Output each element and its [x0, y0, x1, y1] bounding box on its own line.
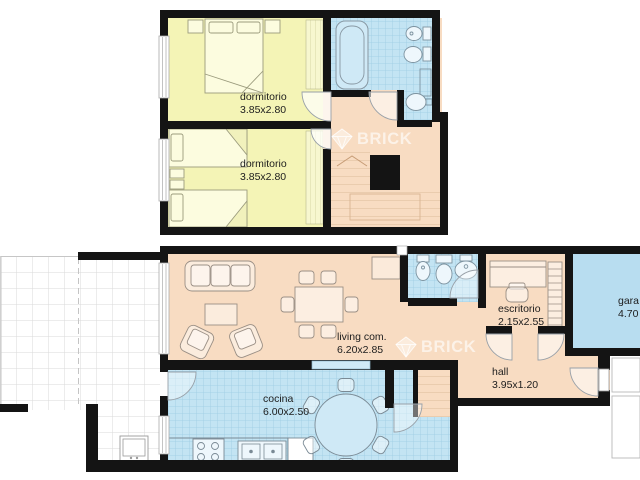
toilet [404, 47, 431, 63]
wardrobe [306, 20, 323, 89]
bathtub [336, 21, 368, 89]
room-dims: 3.85x2.80 [240, 104, 287, 117]
nightstand [170, 169, 184, 178]
entry-path [612, 396, 640, 458]
laundry-tub [120, 436, 148, 461]
desk-chair [506, 283, 528, 302]
pass-through-opening [312, 361, 370, 369]
room-label-dormitorio-1: dormitorio 3.85x2.80 [240, 91, 287, 117]
room-label-garage: gara 4.70 [618, 295, 639, 321]
diamond-gem-icon [331, 128, 353, 150]
door-threshold [160, 372, 168, 396]
sofa [185, 261, 255, 291]
room-name: gara [618, 295, 639, 308]
brick-watermark-lower: BRICK [395, 336, 476, 358]
room-label-dormitorio-2: dormitorio 3.85x2.80 [240, 158, 287, 184]
floor-plan-canvas: dormitorio 3.85x2.80 dormitorio 3.85x2.8… [0, 0, 640, 480]
window [159, 139, 169, 201]
watermark-text: BRICK [357, 130, 412, 149]
diamond-gem-icon [395, 336, 417, 358]
window [159, 36, 169, 98]
toilet [436, 255, 452, 284]
nightstand [265, 20, 280, 33]
room-dims: 3.95x1.20 [492, 379, 538, 392]
cabinet [372, 257, 400, 279]
room-label-living: living com. 6.20x2.85 [337, 331, 387, 357]
stairs-lower [418, 368, 452, 417]
upper-floor-plan [159, 10, 448, 235]
room-dims: 3.85x2.80 [240, 171, 287, 184]
room-name: living com. [337, 331, 387, 344]
room-name: dormitorio [240, 158, 287, 171]
floor-plan-graphics [0, 0, 640, 480]
room-name: cocina [263, 393, 309, 406]
front-door-leaf [599, 369, 609, 391]
room-name: hall [492, 366, 538, 379]
entry-step [612, 358, 640, 392]
room-label-cocina: cocina 6.00x2.50 [263, 393, 309, 419]
bidet [406, 27, 431, 41]
terrace [0, 256, 160, 410]
room-dims: 6.20x2.85 [337, 344, 387, 357]
twin-bed [169, 129, 247, 167]
room-name: escritorio [498, 303, 544, 316]
room-name: dormitorio [240, 91, 287, 104]
nightstand [188, 20, 203, 33]
window [397, 246, 407, 255]
nightstand [170, 180, 184, 189]
kitchen-sink [238, 441, 286, 462]
glass-door [159, 263, 169, 354]
watermark-text: BRICK [421, 338, 476, 357]
bidet [416, 255, 430, 281]
double-bed [205, 19, 263, 93]
bookshelf [548, 262, 562, 332]
room-label-hall: hall 3.95x1.20 [492, 366, 538, 392]
lower-floor-plan [0, 246, 640, 472]
brick-watermark-upper: BRICK [331, 128, 412, 150]
room-label-escritorio: escritorio 2.15x2.55 [498, 303, 544, 329]
coffee-table [205, 304, 237, 325]
room-dims: 6.00x2.50 [263, 406, 309, 419]
window [159, 416, 169, 454]
room-dims: 4.70 [618, 308, 639, 321]
room-dims: 2.15x2.55 [498, 316, 544, 329]
twin-bed [169, 190, 247, 227]
